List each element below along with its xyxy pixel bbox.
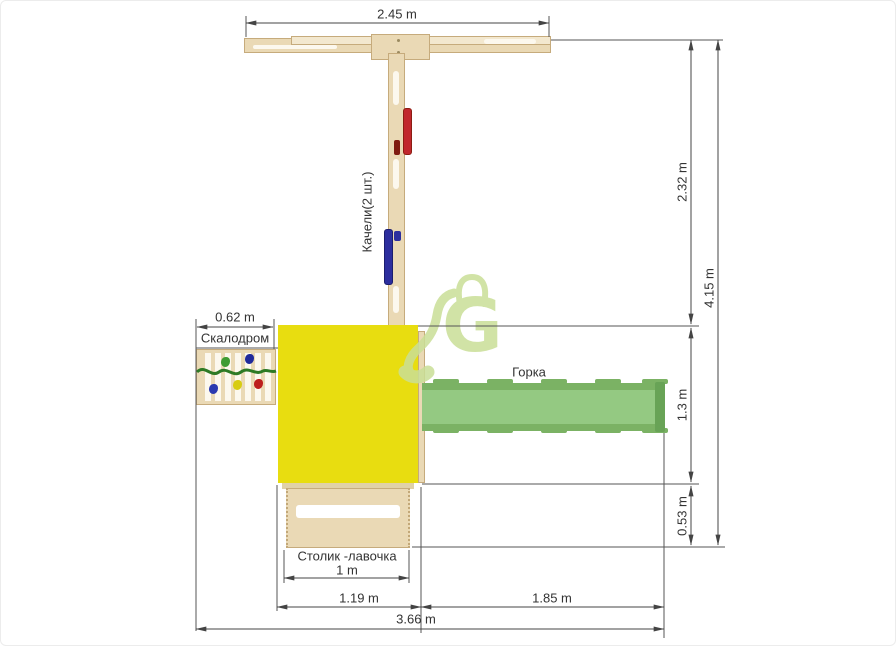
drawing-overlay: G: [1, 1, 896, 646]
label-table-bench: Столик -лавочка: [297, 550, 396, 563]
dim-bench-offset: 0.53 m: [676, 496, 689, 536]
dim-climbing-wall-width: 0.62 m: [215, 311, 255, 324]
dim-upper-height: 2.32 m: [676, 162, 689, 202]
dim-slide-length: 1.85 m: [532, 592, 572, 605]
dim-platform-width: 1.19 m: [339, 592, 379, 605]
logo-watermark: G: [405, 277, 503, 377]
dim-total-width: 3.66 m: [396, 613, 436, 626]
dim-platform-depth: 1.3 m: [676, 389, 689, 422]
dim-total-height: 4.15 m: [703, 268, 716, 308]
playground-plan-diagram: G: [0, 0, 896, 646]
label-climbing-wall: Скалодром: [201, 332, 269, 345]
dim-table-width: 1 m: [336, 564, 358, 577]
label-slide: Горка: [512, 366, 546, 379]
climbing-rope: [197, 369, 276, 373]
dim-beam-width: 2.45 m: [377, 8, 417, 21]
label-swings: Качели(2 шт.): [361, 172, 374, 253]
